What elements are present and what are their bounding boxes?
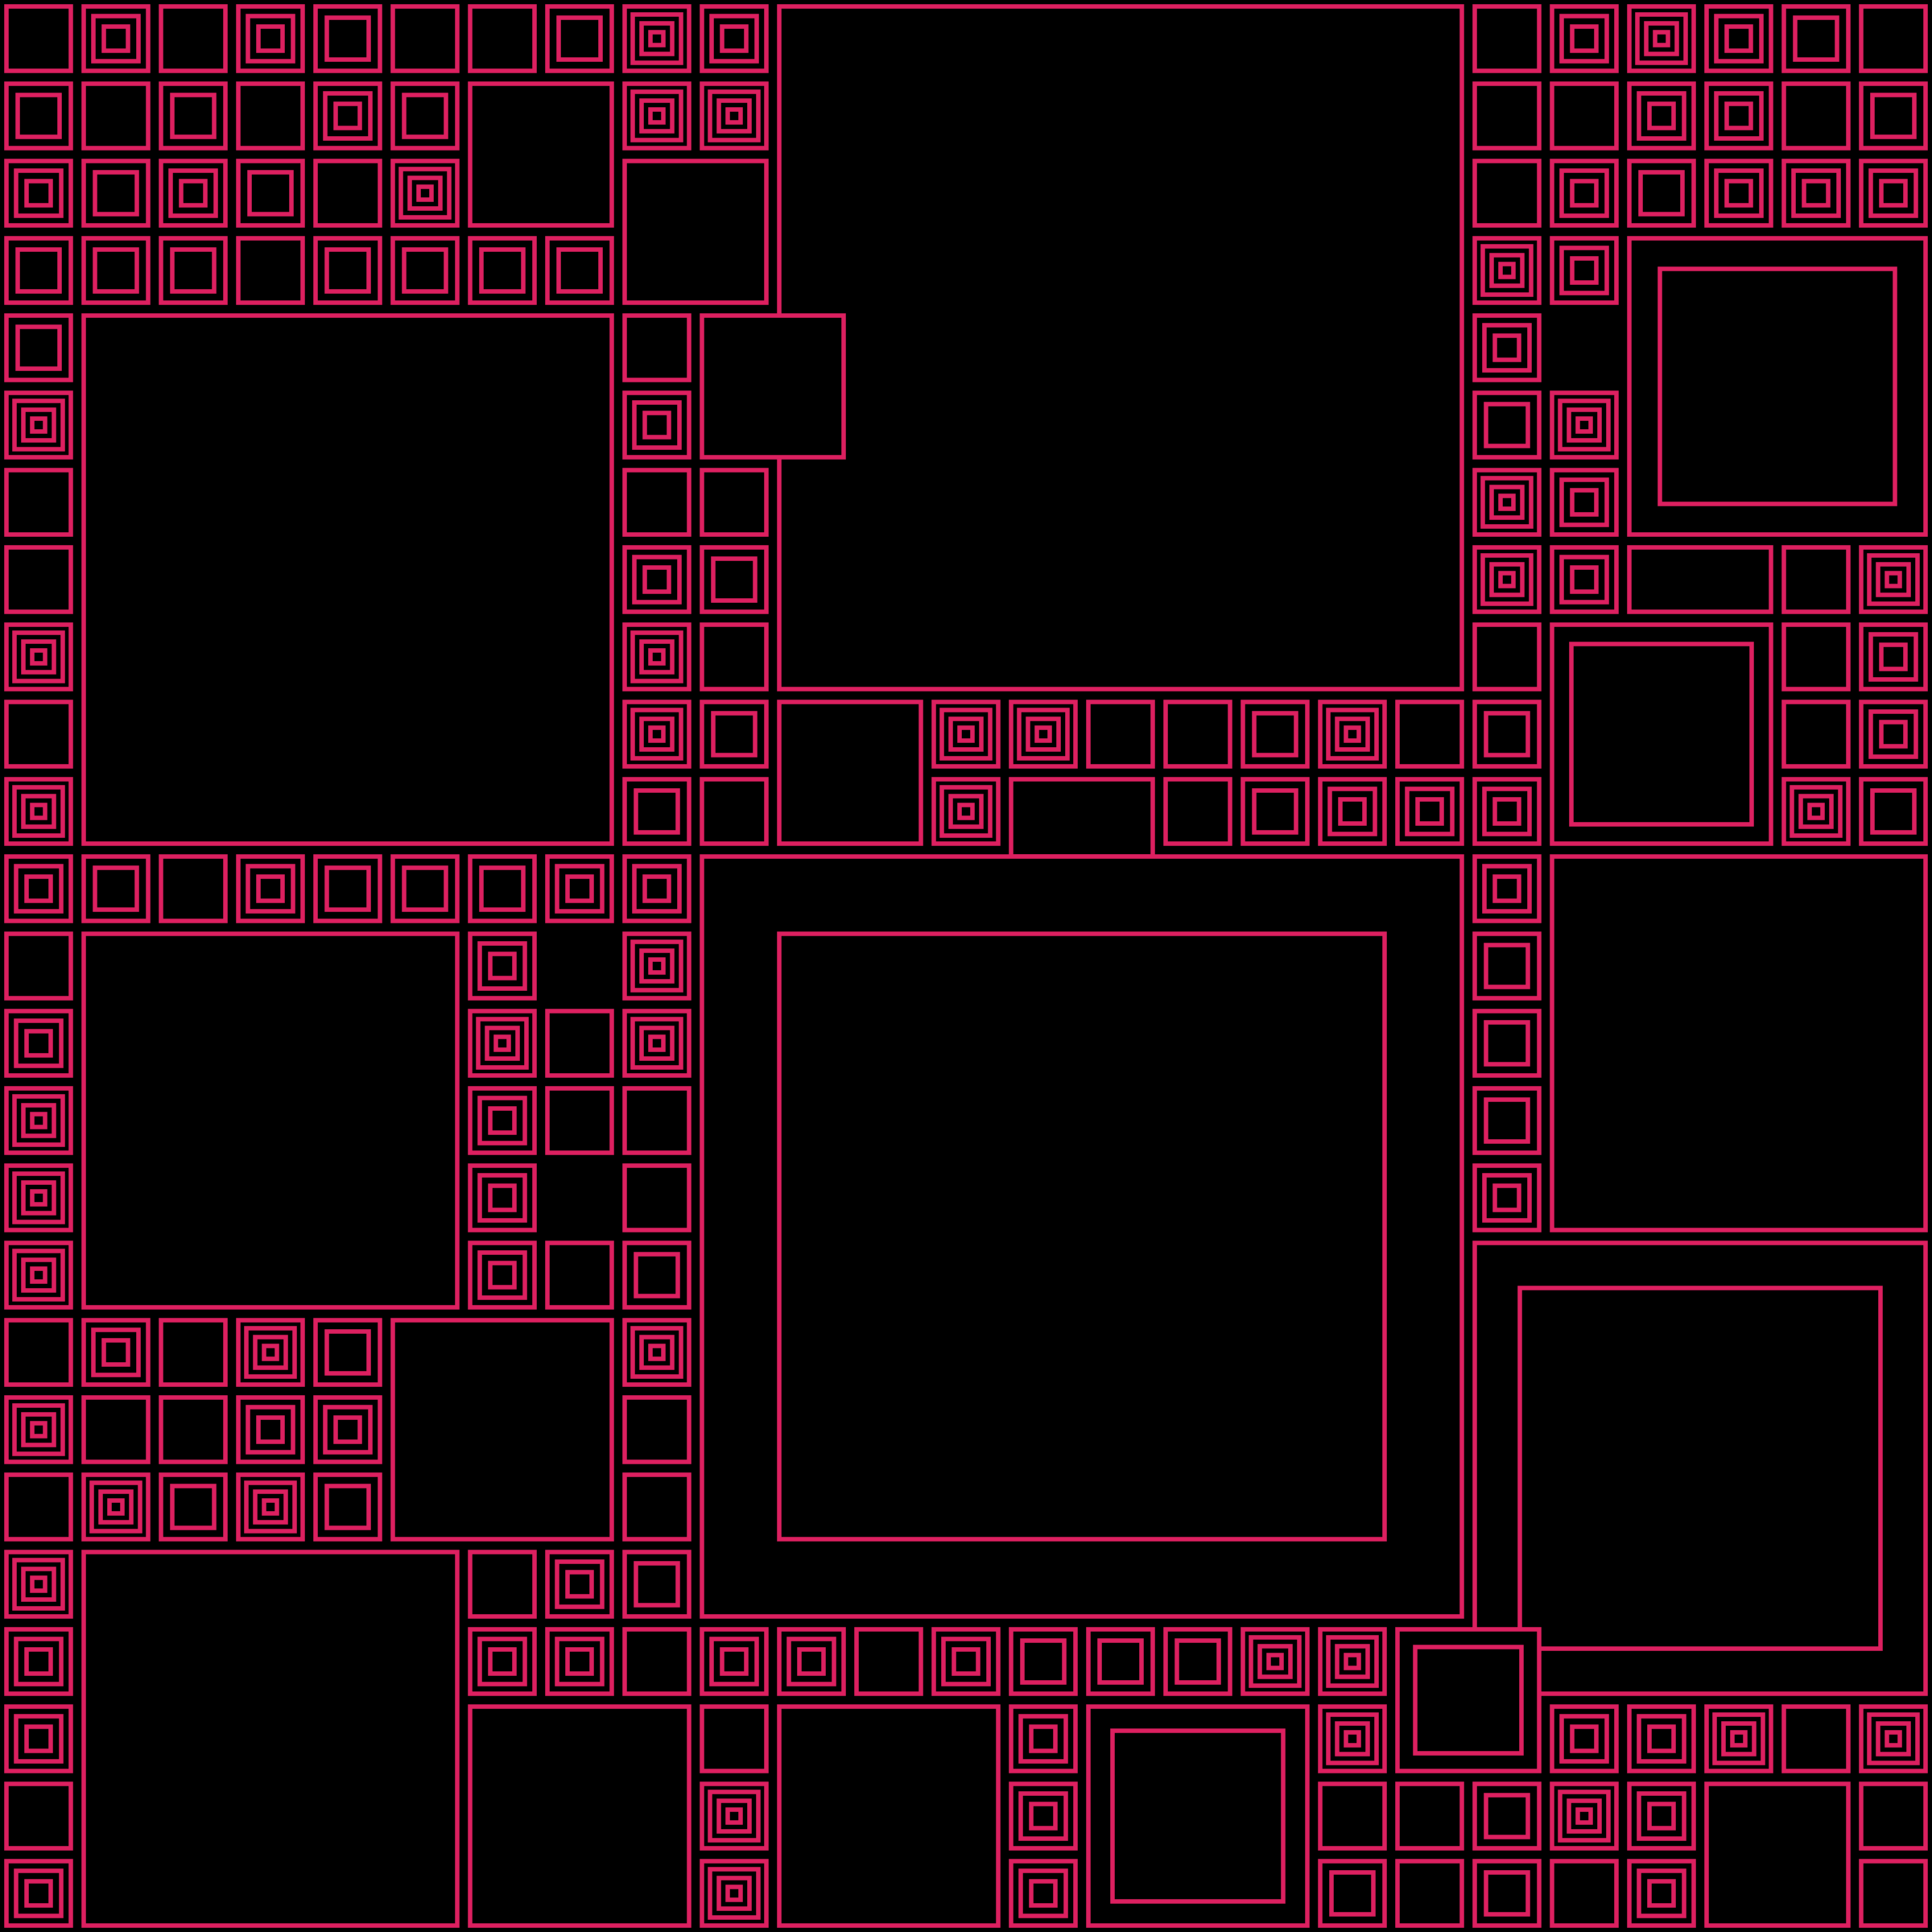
squares-pattern-canvas: [0, 0, 1932, 1932]
medium-square-bottom-1: [470, 1707, 689, 1926]
medium-square-mid: [779, 702, 921, 844]
medium-square-top-mid: [470, 84, 612, 225]
medium-square-bottom-2: [779, 1707, 998, 1926]
big-square-bottom-left: [84, 1552, 457, 1926]
big-square-right-lower: [1552, 857, 1926, 1230]
medium-square-left-lower: [393, 1320, 612, 1539]
big-square-bottom-right: [1475, 1243, 1926, 1694]
medium-square-bottom-3: [1088, 1707, 1307, 1926]
medium-square-top-mid-2: [625, 161, 766, 303]
big-square-left-mid: [84, 934, 457, 1307]
medium-square-left-edge: [702, 316, 844, 457]
big-square-top-center: [779, 6, 1462, 689]
small-block-bottom-right: [1707, 1784, 1848, 1926]
big-square-center: [702, 857, 1462, 1616]
rect-right-wide: [1629, 547, 1771, 612]
rect-mid-wide: [1011, 779, 1153, 857]
big-square-top-left: [84, 316, 612, 844]
medium-square-right-mid: [1552, 625, 1771, 844]
medium-square-bottom-mid: [1397, 1629, 1539, 1771]
pattern-background: [0, 0, 1932, 1932]
big-square-right-upper: [1629, 238, 1926, 535]
